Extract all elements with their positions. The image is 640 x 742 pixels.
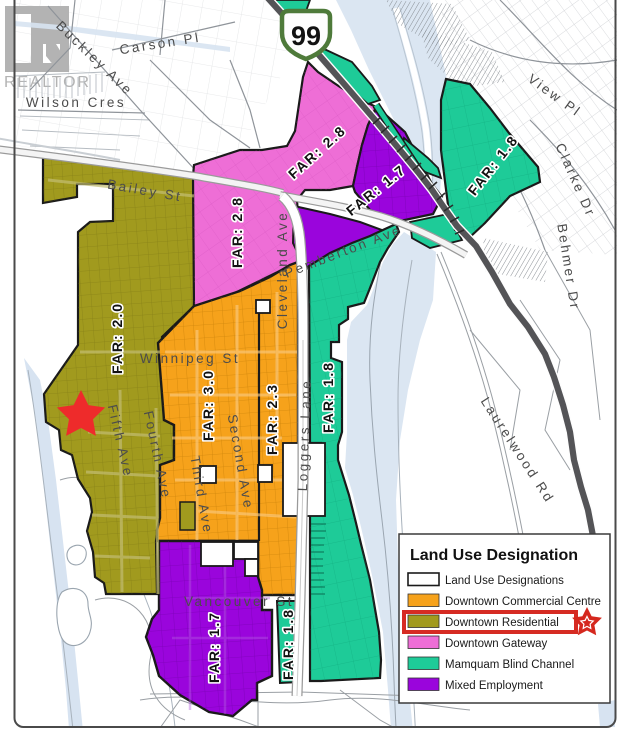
svg-text:99: 99: [291, 21, 321, 51]
svg-text:Wilson Cres: Wilson Cres: [26, 95, 126, 110]
svg-text:Mixed Employment: Mixed Employment: [445, 680, 544, 692]
svg-text:Land Use Designations: Land Use Designations: [445, 575, 564, 587]
svg-text:FAR: 1.7: FAR: 1.7: [206, 611, 222, 683]
svg-text:Vancouver St: Vancouver St: [184, 594, 294, 609]
svg-text:FAR: 2.8: FAR: 2.8: [229, 196, 245, 268]
svg-text:Mamquam Blind Channel: Mamquam Blind Channel: [445, 659, 574, 671]
svg-text:Downtown Residential: Downtown Residential: [445, 617, 559, 629]
svg-text:Downtown Gateway: Downtown Gateway: [445, 638, 548, 650]
svg-text:Winnipeg St: Winnipeg St: [140, 351, 240, 366]
svg-text:Land Use Designation: Land Use Designation: [410, 547, 578, 564]
svg-text:FAR: 2.0: FAR: 2.0: [109, 302, 125, 374]
svg-text:FAR: 2.3: FAR: 2.3: [264, 383, 280, 455]
svg-text:FAR: 3.0: FAR: 3.0: [200, 369, 216, 441]
svg-text:FAR: 1.8: FAR: 1.8: [320, 361, 336, 433]
svg-text:Downtown Commercial Centre: Downtown Commercial Centre: [445, 596, 601, 608]
svg-text:FAR: 1.8: FAR: 1.8: [280, 608, 296, 680]
